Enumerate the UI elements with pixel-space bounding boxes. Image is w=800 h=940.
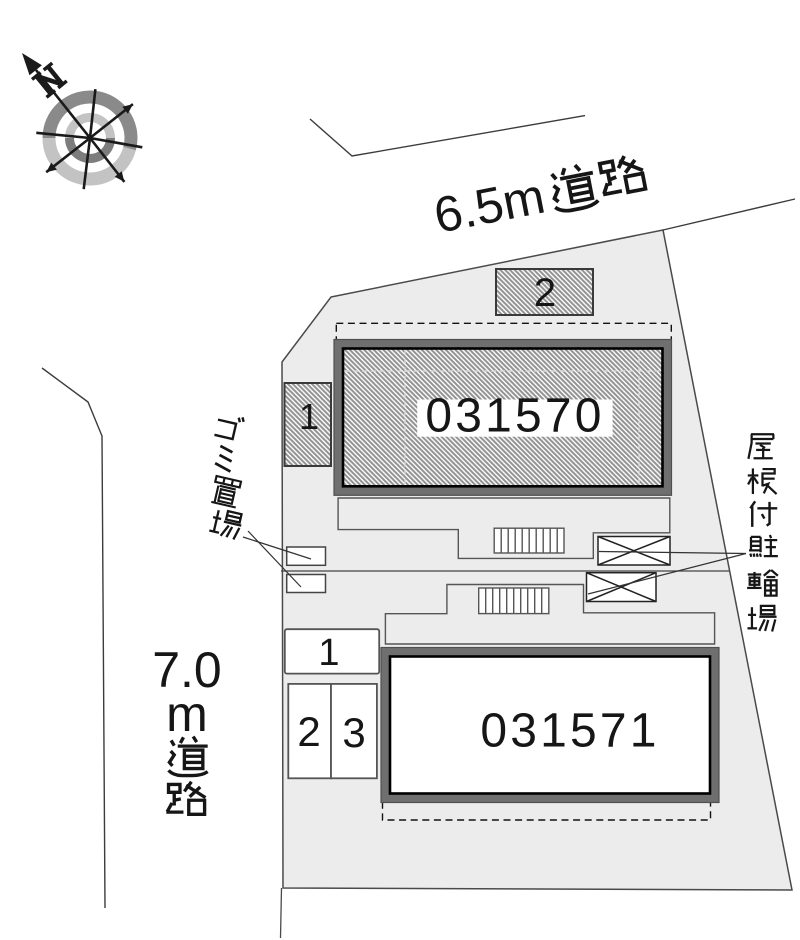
svg-text:1: 1 <box>299 396 319 437</box>
svg-text:2: 2 <box>534 271 556 315</box>
svg-text:031570: 031570 <box>425 390 604 443</box>
svg-text:m: m <box>166 686 208 742</box>
svg-text:2: 2 <box>297 708 320 755</box>
svg-text:1: 1 <box>318 632 339 674</box>
svg-text:3: 3 <box>342 709 365 756</box>
svg-text:031571: 031571 <box>480 705 659 758</box>
